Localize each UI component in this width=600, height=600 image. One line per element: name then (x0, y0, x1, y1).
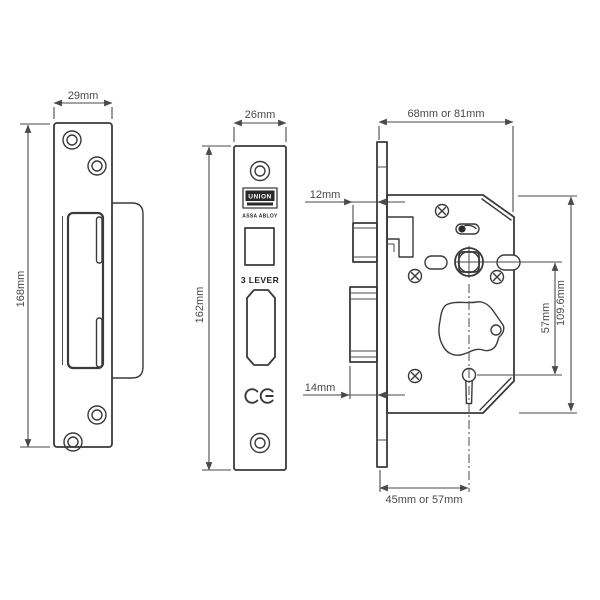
case-screw (409, 270, 422, 283)
deadbolt-front (247, 290, 275, 365)
union-brand-badge: UNION (243, 188, 277, 208)
faceplate-screw-hole (251, 434, 270, 453)
strike-screw-hole (88, 406, 106, 424)
faceplate-screw-hole (251, 162, 270, 181)
case-screw (491, 271, 504, 284)
case-screw (409, 370, 422, 383)
dimension-case-depth: 68mm or 81mm (379, 108, 513, 212)
dimension-follower-to-keyhole: 57mm (540, 263, 555, 374)
strike-plate-view: 29mm 168mm (15, 90, 143, 451)
latch-bolt-side (353, 223, 377, 262)
strike-screw-hole (64, 433, 82, 451)
latch-projection-label: 12mm (310, 189, 341, 201)
strike-width-label: 29mm (68, 90, 99, 102)
dimension-strike-height: 168mm (15, 124, 50, 447)
strike-bolt-cutout (68, 213, 103, 368)
bottom-chamfer-inner-line (480, 378, 511, 410)
dimension-deadbolt-projection: 14mm (303, 366, 405, 399)
dimension-backset: 45mm or 57mm (380, 470, 468, 506)
strike-screw-hole (63, 131, 81, 149)
strike-screw-hole (88, 157, 106, 175)
ce-mark-icon (245, 389, 272, 403)
strike-tab-lower (97, 318, 103, 367)
lever-count-label: 3 LEVER (241, 275, 279, 285)
strike-tab-upper (97, 217, 103, 263)
latch-aperture (245, 228, 274, 265)
lock-case-view: 68mm or 81mm 12mm 14mm 57mm 109. (303, 108, 577, 506)
spindle-follower (455, 246, 562, 278)
fixing-hole-oval (425, 256, 447, 269)
dimension-faceplate-width: 26mm (234, 109, 286, 142)
brand-sub-label: ASSA ABLOY (242, 214, 278, 220)
backset-label: 45mm or 57mm (385, 494, 462, 506)
strike-height-label: 168mm (15, 271, 27, 308)
lock-drawing-svg: 29mm 168mm UNION ASSA ABLOY 3 LEVER (0, 0, 600, 600)
box-keep-outline (112, 203, 143, 378)
faceplate-view: UNION ASSA ABLOY 3 LEVER 26mm (194, 109, 286, 470)
dimension-strike-width: 29mm (54, 90, 112, 119)
technical-drawing-canvas: 29mm 168mm UNION ASSA ABLOY 3 LEVER (0, 0, 600, 600)
lever-pack (439, 302, 504, 355)
case-screw (436, 205, 449, 218)
dimension-faceplate-height: 162mm (194, 146, 231, 470)
case-height-label: 109.6mm (555, 280, 567, 326)
latch-body-internal (387, 217, 413, 257)
case-depth-label: 68mm or 81mm (407, 108, 484, 120)
lever-pivot-hole (491, 325, 501, 335)
faceplate-width-label: 26mm (245, 109, 276, 121)
spring-slot-detail (456, 224, 479, 234)
faceplate-height-label: 162mm (194, 287, 206, 324)
faceplate-side-strip (377, 142, 387, 467)
deadbolt-projection-label: 14mm (305, 382, 336, 394)
deadbolt-side (350, 287, 377, 362)
follower-to-keyhole-label: 57mm (540, 303, 552, 334)
brand-label: UNION (248, 194, 271, 201)
top-chamfer-inner-line (482, 199, 511, 220)
